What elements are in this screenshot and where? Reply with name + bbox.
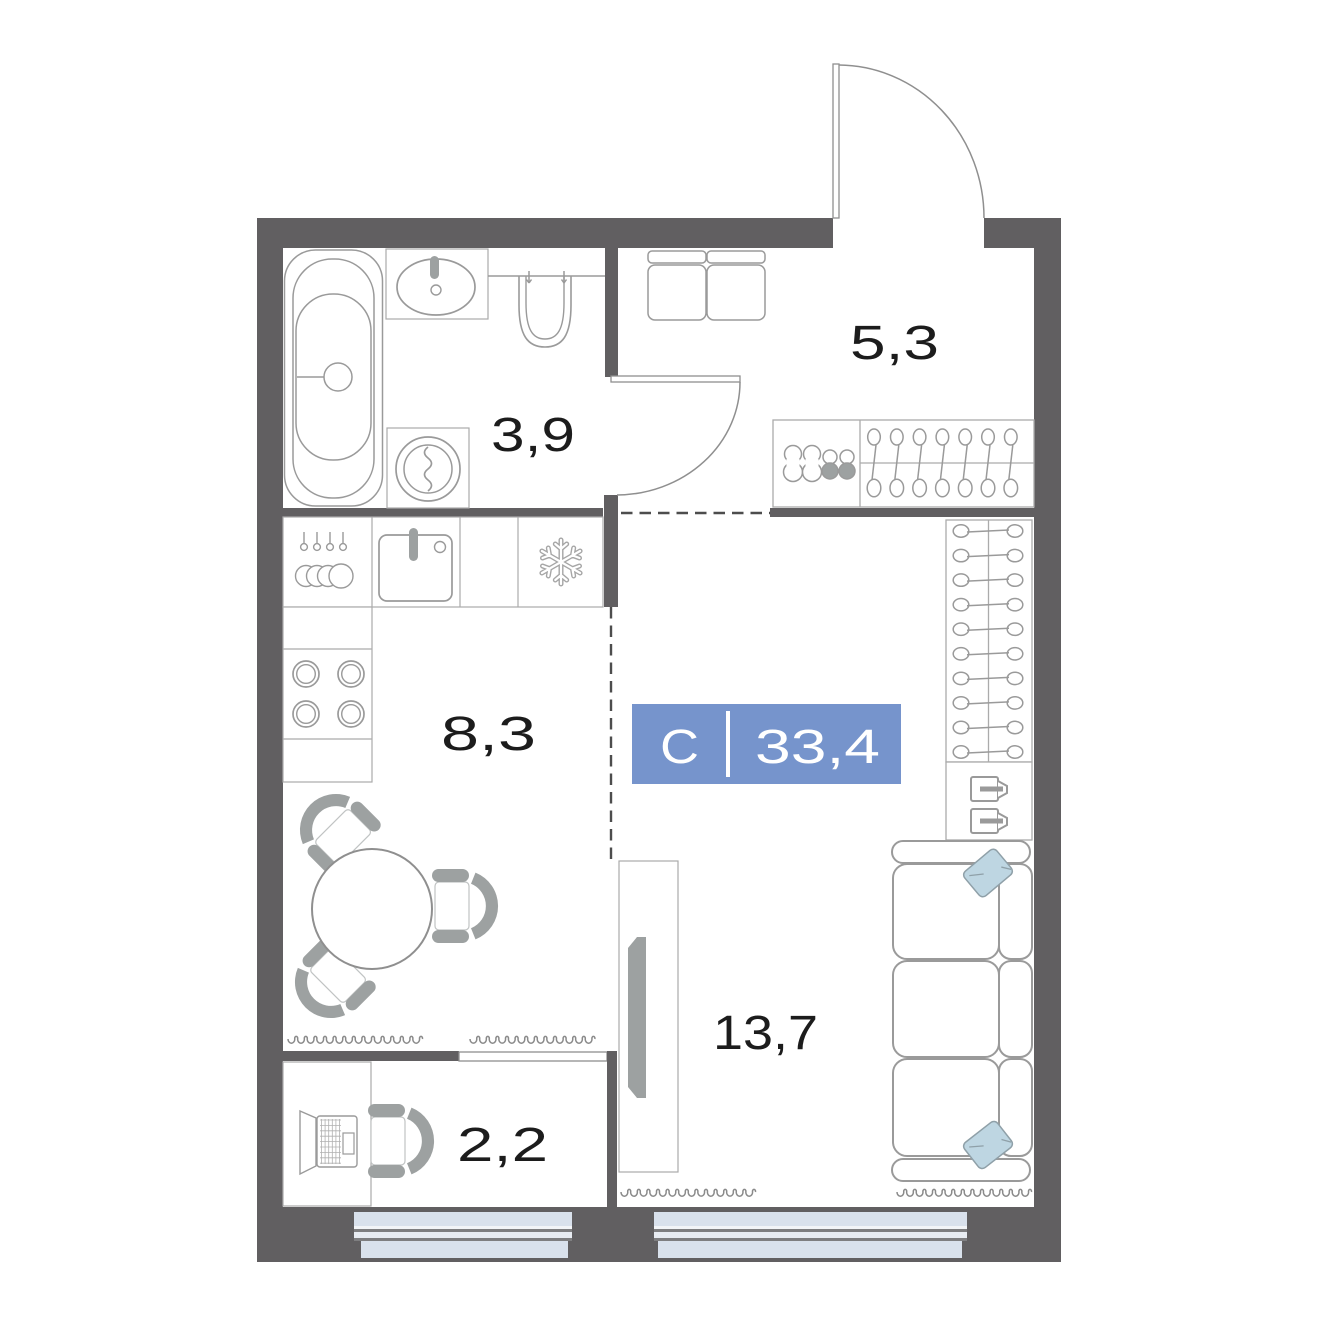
svg-text:3,9: 3,9 [491,409,575,462]
svg-text:2,2: 2,2 [457,1119,548,1172]
svg-text:33,4: 33,4 [755,721,880,774]
svg-text:5,3: 5,3 [850,317,939,370]
svg-text:С: С [660,721,699,774]
svg-text:13,7: 13,7 [713,1007,818,1060]
svg-text:8,3: 8,3 [441,708,536,761]
